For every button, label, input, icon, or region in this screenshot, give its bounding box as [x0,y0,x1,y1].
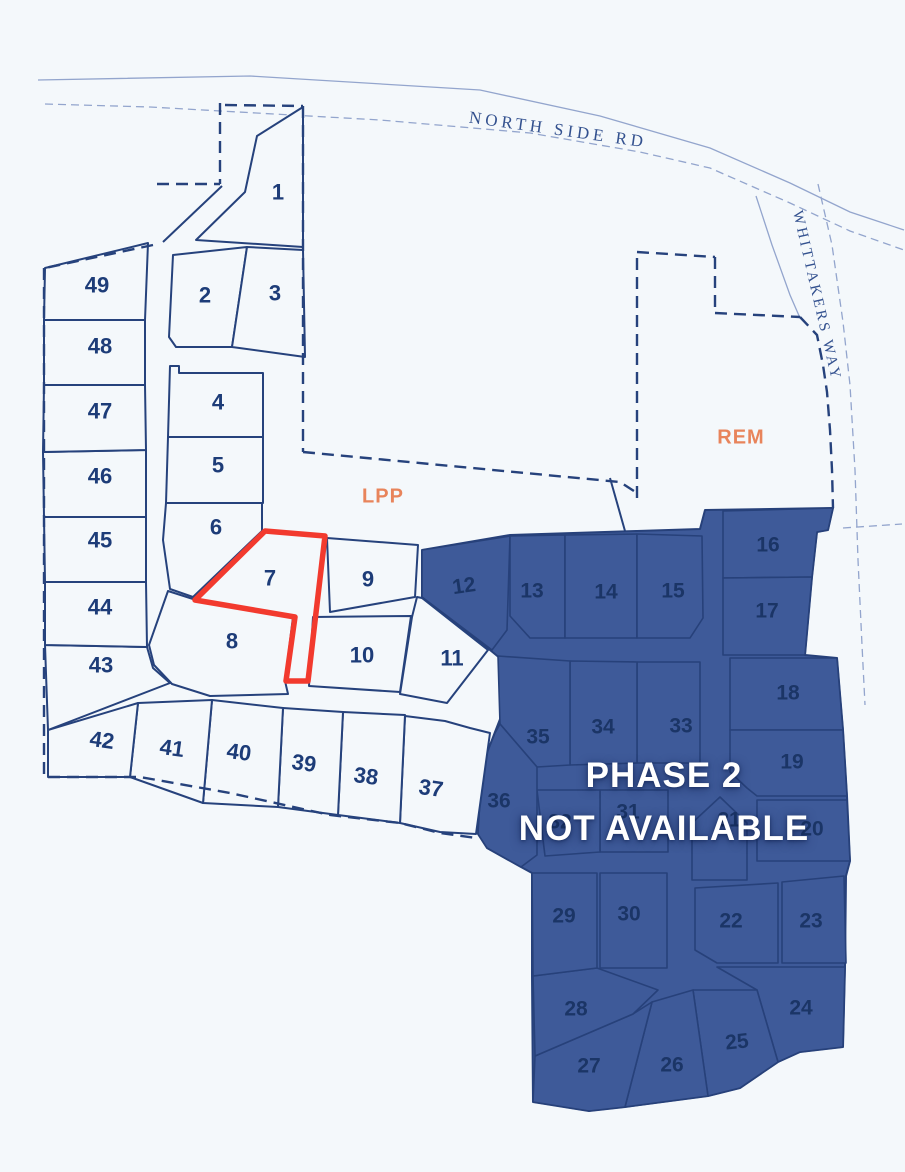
lot-number-48: 48 [88,334,112,359]
lot-number-3: 3 [269,281,281,306]
lot-number-9: 9 [362,567,374,592]
lot-37-region[interactable] [400,716,490,834]
lot-number-49: 49 [85,273,109,298]
lot-number-41: 41 [158,734,186,762]
lot-number-38: 38 [352,762,380,790]
lot-number-32: 32 [548,811,571,834]
lot-number-5: 5 [212,453,224,478]
lot-map: 1234567891011373839404142434445464748491… [0,0,905,1172]
lot-number-39: 39 [290,749,318,777]
lot-number-14: 14 [594,581,618,604]
lot-number-4: 4 [212,390,225,415]
lot-number-27: 27 [577,1055,600,1078]
boundary-dashed-line [225,105,303,106]
lot-number-10: 10 [350,643,374,668]
lot-number-31: 31 [616,801,640,824]
lot-34-region [570,661,637,765]
lot-number-18: 18 [776,682,800,705]
lot-number-6: 6 [210,515,222,540]
lot-number-42: 42 [88,726,116,754]
lot-number-23: 23 [799,910,822,933]
lot-number-44: 44 [88,595,113,620]
lot-number-13: 13 [520,580,543,603]
lot-number-34: 34 [591,716,615,739]
lot-number-28: 28 [564,998,588,1021]
lot-number-21: 21 [717,809,741,832]
lot-number-45: 45 [88,528,112,553]
lot-number-8: 8 [226,629,238,654]
lot-number-24: 24 [789,997,813,1020]
lot-number-12: 12 [451,573,477,599]
lot-number-29: 29 [552,905,575,928]
lot-number-16: 16 [756,534,779,557]
lot-number-20: 20 [800,818,823,841]
lot-number-2: 2 [199,283,211,308]
lot-number-25: 25 [724,1029,750,1054]
lot-33-region [637,662,700,763]
site-plan-svg: 1234567891011373839404142434445464748491… [0,0,905,1172]
lot-number-35: 35 [526,726,550,749]
lot-number-47: 47 [88,399,112,424]
lot-number-33: 33 [669,715,692,738]
lot-number-11: 11 [440,646,463,671]
lot-number-26: 26 [660,1054,683,1077]
lot-number-30: 30 [617,903,640,926]
lot-number-1: 1 [272,180,284,205]
lot-number-37: 37 [417,774,445,802]
lot-number-36: 36 [487,790,510,813]
lot-number-46: 46 [88,464,112,489]
lot-number-40: 40 [225,738,253,766]
lot-number-43: 43 [89,653,113,678]
lot-number-15: 15 [661,580,685,603]
lot-number-7: 7 [264,566,276,591]
lot-number-17: 17 [755,600,778,623]
lot-number-22: 22 [719,910,742,933]
lot-number-19: 19 [780,751,803,774]
